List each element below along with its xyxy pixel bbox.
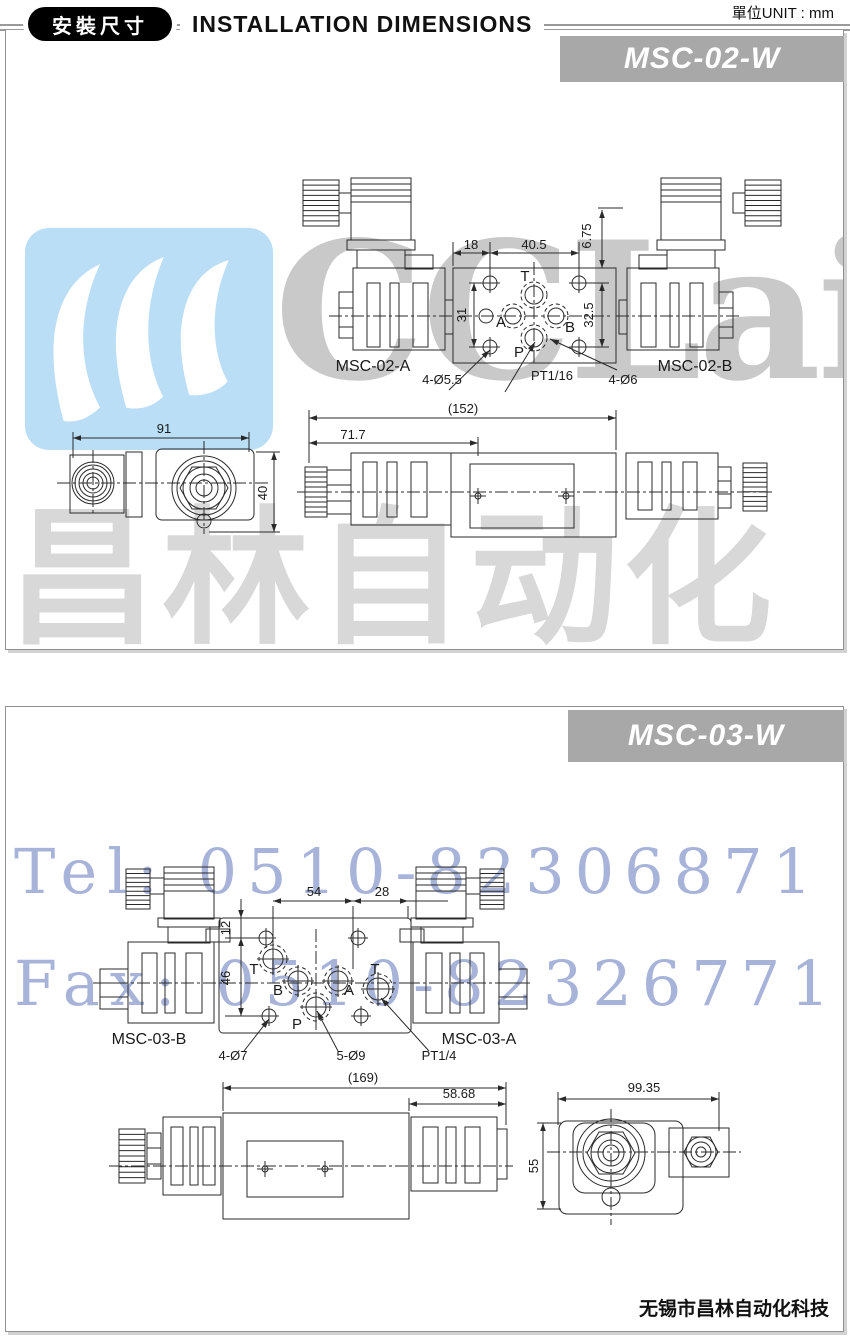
- dim-46-label: 46: [218, 971, 233, 985]
- dim-40-5-label: 40.5: [521, 237, 546, 252]
- model-name: MSC-02-W: [624, 42, 780, 76]
- page-title: INSTALLATION DIMENSIONS: [180, 9, 544, 39]
- solenoid-b-label: MSC-03-B: [112, 1031, 187, 1048]
- hole-big-label: 4-Ø6: [609, 372, 638, 387]
- dim-31-label: 31: [454, 308, 469, 322]
- model-banner-msc-02-w: MSC-02-W: [560, 36, 844, 82]
- dim-28-label: 28: [375, 884, 389, 899]
- dim-99-35-label: 99.35: [628, 1080, 661, 1095]
- port-t2-label: T: [370, 961, 379, 978]
- model-name: MSC-03-W: [628, 719, 784, 753]
- dim-91-label: 91: [157, 421, 171, 436]
- msc-03-linework: [93, 867, 741, 1225]
- dim-169-label: (169): [348, 1070, 378, 1085]
- dim-152-label: (152): [448, 401, 478, 416]
- solenoid-a-label: MSC-02-A: [336, 358, 411, 375]
- solenoid-b-label: MSC-02-B: [658, 358, 733, 375]
- section-badge: 安裝尺寸: [28, 7, 172, 41]
- msc-03-drawing: 54 28 12 46 T B A T P MSC-03-B MSC-03-A …: [6, 707, 844, 1332]
- hole-big-label: 5-Ø9: [337, 1048, 366, 1063]
- port-p-label: P: [292, 1016, 302, 1033]
- catalog-page: 單位UNIT : mm 安裝尺寸 INSTALLATION DIMENSIONS…: [0, 0, 850, 1344]
- dim-58-68-label: 58.68: [443, 1086, 476, 1101]
- port-t-label: T: [520, 268, 529, 285]
- dim-18-label: 18: [464, 237, 478, 252]
- hole-small-label: 4-Ø7: [219, 1048, 248, 1063]
- company-name: 无锡市昌林自动化科技: [639, 1294, 829, 1321]
- port-b-label: B: [565, 319, 575, 336]
- dim-54-label: 54: [307, 884, 321, 899]
- panel-msc-03-w: Tel: 0510-82306871 Fax: 0510-82326771 54…: [5, 706, 844, 1332]
- dim-40-label: 40: [255, 486, 270, 500]
- thread-label: PT1/4: [422, 1048, 457, 1063]
- panel-msc-02-w: CCLair 昌林自动化 18 40.5 6.75 31 32.5 T A B …: [5, 30, 844, 650]
- port-a-label: A: [496, 314, 506, 331]
- port-p-label: P: [514, 344, 524, 361]
- port-b-label: B: [273, 982, 283, 999]
- dim-32-5-label: 32.5: [581, 302, 596, 327]
- dim-6-75-label: 6.75: [579, 223, 594, 248]
- section-badge-text: 安裝尺寸: [52, 10, 148, 39]
- hole-small-label: 4-Ø5.5: [422, 372, 462, 387]
- port-t1-label: T: [249, 961, 258, 978]
- solenoid-a-label: MSC-03-A: [442, 1031, 517, 1048]
- model-banner-msc-03-w: MSC-03-W: [568, 710, 844, 762]
- dim-55-label: 55: [526, 1159, 541, 1173]
- msc-02-drawing: 18 40.5 6.75 31 32.5 T A B P MSC-02-A MS…: [6, 30, 844, 650]
- unit-label: 單位UNIT : mm: [732, 2, 834, 23]
- thread-label: PT1/16: [531, 368, 573, 383]
- dim-12-label: 12: [218, 921, 233, 935]
- dim-71-7-label: 71.7: [340, 427, 365, 442]
- port-a-label: A: [344, 982, 354, 999]
